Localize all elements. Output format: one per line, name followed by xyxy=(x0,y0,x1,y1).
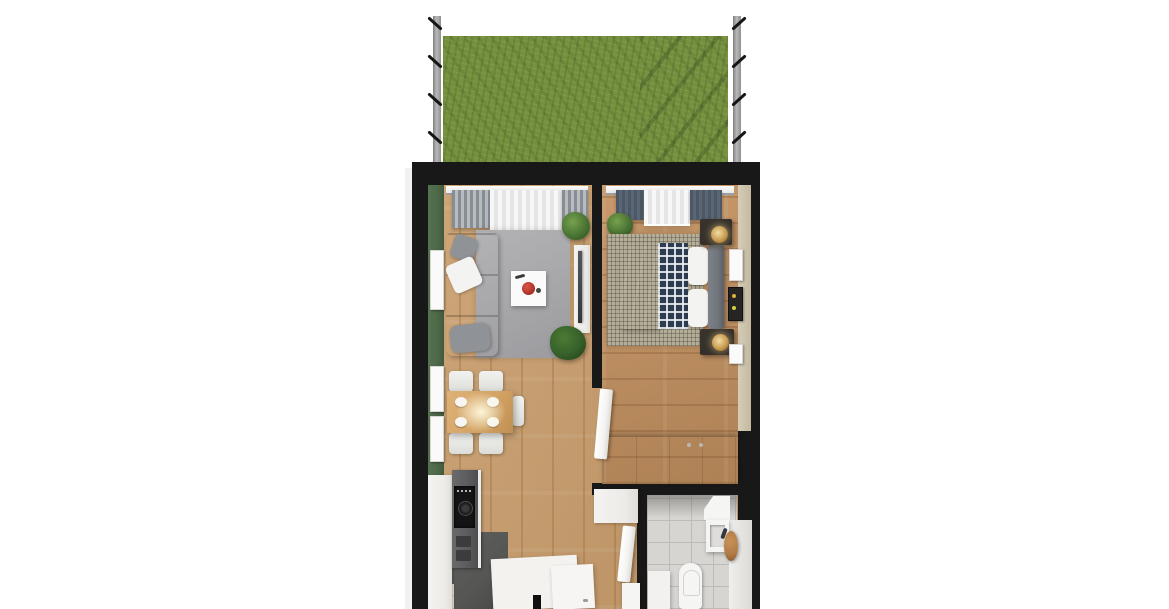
table-lamp xyxy=(711,226,728,243)
wall-art-frame xyxy=(729,249,743,281)
hall-wall-cabinet xyxy=(594,489,638,523)
floor-plant xyxy=(550,326,586,360)
wall-art-frame xyxy=(728,287,743,321)
wall-art-frame xyxy=(430,416,444,462)
window-sheer-curtain xyxy=(644,190,690,226)
tall-cabinet xyxy=(428,475,452,609)
kitchen-drawer xyxy=(456,550,471,561)
cooktop-knob xyxy=(465,490,467,492)
bed-pillow xyxy=(688,247,708,285)
dining-chair xyxy=(449,371,473,392)
throw-blanket xyxy=(449,322,492,354)
window-drape-left xyxy=(452,190,490,228)
wall-art-frame xyxy=(430,250,444,310)
bed-plaid-blanket xyxy=(658,243,688,329)
dining-chair xyxy=(512,396,524,426)
cooktop-knob xyxy=(457,490,459,492)
corner-plant xyxy=(562,212,590,240)
grass-shadow xyxy=(640,36,728,162)
red-bowl xyxy=(522,282,535,295)
bed-headboard xyxy=(708,245,724,329)
island-handle xyxy=(533,595,541,609)
burner-icon xyxy=(458,501,473,516)
toilet-seat-line xyxy=(683,570,700,596)
outer-wall-face xyxy=(405,168,412,609)
wall-art-frame xyxy=(729,344,743,364)
table-decor xyxy=(536,288,541,293)
wooden-stool xyxy=(724,531,738,561)
dining-chair xyxy=(449,433,473,454)
table-lamp xyxy=(712,334,729,351)
bed-duvet xyxy=(618,243,658,329)
wardrobe-handle xyxy=(699,443,703,447)
shower-tray xyxy=(648,571,670,609)
wardrobe xyxy=(604,437,738,484)
laundry-unit xyxy=(622,583,640,609)
cooktop-knob xyxy=(469,490,471,492)
dining-chair xyxy=(479,371,503,392)
wardrobe-handle xyxy=(687,443,691,447)
floorplan-canvas xyxy=(0,0,1169,609)
wall-art-frame xyxy=(430,366,444,412)
bed-pillow xyxy=(688,289,708,327)
interior-wall-living-bedroom xyxy=(592,185,602,388)
cooktop-knob xyxy=(461,490,463,492)
tv-sideboard xyxy=(574,245,590,333)
mat-handle xyxy=(583,599,588,602)
frame-dot xyxy=(732,306,736,310)
kitchen-drawer xyxy=(456,536,471,547)
floor-mat xyxy=(551,564,595,609)
pendant-light-glow xyxy=(456,392,506,432)
window-drape-right xyxy=(690,190,722,220)
frame-dot xyxy=(732,294,736,298)
tv xyxy=(578,251,582,323)
window-sheer-curtain xyxy=(490,190,562,234)
dining-chair xyxy=(479,433,503,454)
